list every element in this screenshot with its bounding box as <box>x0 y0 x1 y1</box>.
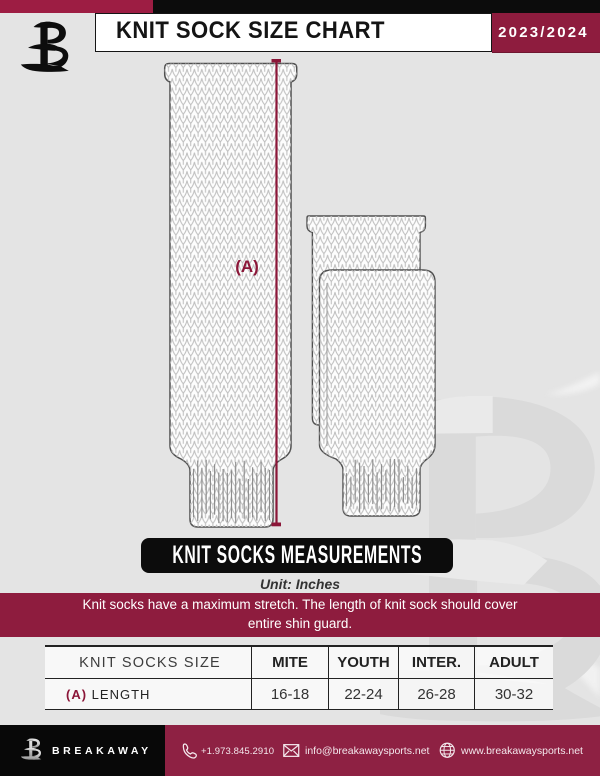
svg-text:(A): (A) <box>235 257 259 276</box>
